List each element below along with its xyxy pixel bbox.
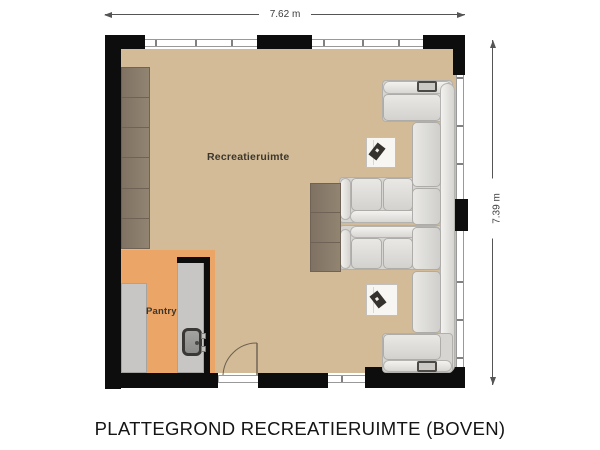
right-dimension-arrow-top (490, 40, 496, 48)
plan-title: PLATTEGROND RECREATIERUIMTE (BOVEN) (0, 418, 600, 440)
top-dimension-label: 7.62 m (259, 8, 311, 21)
sofa-cushion (412, 188, 441, 225)
right-dimension-arrow-bottom (490, 377, 496, 385)
sofa-top-armrest-detail (417, 81, 437, 92)
sofa-cushion (412, 227, 441, 270)
sofa-middle-lower-armrest (340, 229, 351, 269)
wall-right-pier-top (453, 35, 465, 75)
cabinet-column (121, 67, 150, 249)
sofa-cushion (383, 178, 413, 211)
sideboard-cell (311, 184, 340, 212)
sideboard-cell (311, 213, 340, 241)
sideboard-cell (311, 243, 340, 271)
cabinet-cell (122, 128, 149, 157)
room-label-pantry: Pantry (146, 306, 177, 317)
room-label-recreatieruimte: Recreatieruimte (207, 151, 289, 163)
sofa-bottom-armrest-detail (417, 361, 437, 372)
wall-left (105, 35, 121, 389)
sink-drain-icon (195, 341, 199, 345)
sofa-cushion (351, 238, 382, 269)
sofa-middle-upper-armrest (340, 178, 351, 220)
pantry-counter-left (121, 283, 147, 373)
window-top-left (145, 39, 257, 47)
door-swing (220, 340, 262, 378)
sink-faucet-icon (201, 333, 206, 339)
cabinet-cell (122, 98, 149, 127)
sofa-cushion (351, 178, 382, 211)
wall-right-pier-mid (453, 199, 468, 231)
sofa-right-back (440, 83, 455, 373)
sofa-cushion (383, 334, 441, 360)
window-bottom (328, 375, 365, 383)
sofa-cushion (383, 94, 441, 121)
sink (182, 328, 202, 356)
floor-plan-page: 7.62 m 7.39 m (0, 0, 600, 450)
top-dimension-arrow-right (457, 12, 465, 18)
right-dimension-label: 7.39 m (491, 179, 504, 239)
sink-tap-icon (201, 346, 206, 352)
wall-bottom-left-segment (105, 373, 218, 388)
sofa-cushion (383, 238, 413, 269)
wall-top-mid-segment (257, 35, 312, 49)
window-right-lower (456, 231, 464, 367)
wall-bottom-mid-segment (258, 373, 328, 388)
cabinet-cell (122, 68, 149, 97)
cabinet-cell (122, 189, 149, 218)
cabinet-cell (122, 158, 149, 187)
window-right-upper (456, 75, 464, 199)
top-dimension-arrow-left (104, 12, 112, 18)
sideboard (310, 183, 341, 272)
pantry-partition-wall (204, 257, 210, 373)
pantry-counter-right (177, 262, 204, 373)
sofa-cushion (412, 271, 441, 333)
window-top-right (312, 39, 423, 47)
sofa-cushion (412, 122, 441, 187)
cabinet-cell (122, 219, 149, 248)
